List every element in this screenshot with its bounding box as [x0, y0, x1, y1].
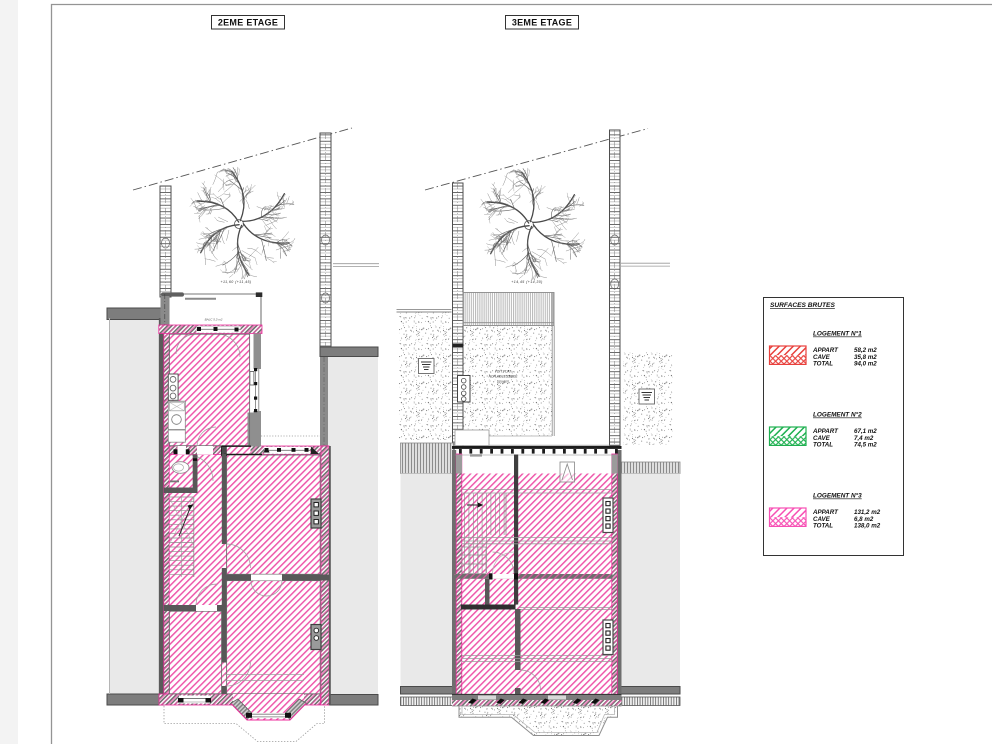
svg-text:138,0 m2: 138,0 m2 [854, 522, 881, 529]
svg-text:TOTAL: TOTAL [813, 522, 833, 529]
svg-text:2EME ETAGE: 2EME ETAGE [218, 18, 278, 28]
svg-text:74,5 m2: 74,5 m2 [854, 441, 877, 448]
svg-text:LOGEMENT N°1: LOGEMENT N°1 [813, 330, 862, 338]
svg-text:+14,45 (+14,30): +14,45 (+14,30) [511, 280, 543, 284]
svg-text:3EME ETAGE: 3EME ETAGE [512, 18, 572, 28]
svg-text:TOTAL: TOTAL [813, 360, 833, 367]
svg-text:SURFACES BRUTES: SURFACES BRUTES [770, 302, 835, 309]
svg-text:(gravier): (gravier) [497, 380, 509, 384]
svg-text:94,0 m2: 94,0 m2 [854, 360, 877, 367]
svg-text:TOTAL: TOTAL [813, 441, 833, 448]
svg-text:NON ACCESSIBLE: NON ACCESSIBLE [489, 375, 519, 379]
svg-text:LOGEMENT N°2: LOGEMENT N°2 [813, 411, 862, 419]
svg-text:LOGEMENT N°3: LOGEMENT N°3 [813, 492, 862, 500]
svg-text:+11,60 (+11,45): +11,60 (+11,45) [220, 280, 251, 284]
svg-text:TOIT PLAT: TOIT PLAT [495, 370, 512, 374]
svg-text:BALC 5,3 m2: BALC 5,3 m2 [205, 318, 223, 322]
